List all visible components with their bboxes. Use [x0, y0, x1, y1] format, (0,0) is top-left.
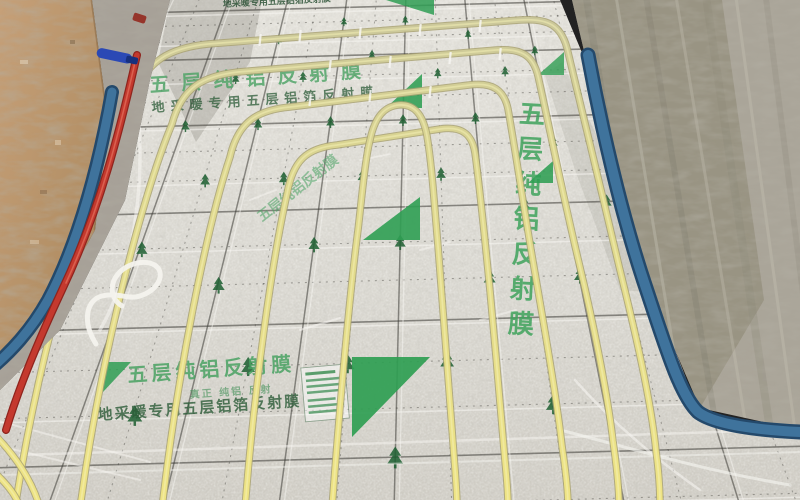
installation-scene: 地采暖专用五层铝箔反射膜 五层纯铝反射膜 地采暖专用五层铝箔反射膜 五层纯铝反射…	[0, 0, 800, 500]
underfloor-heating-photo: 地采暖专用五层铝箔反射膜 五层纯铝反射膜 地采暖专用五层铝箔反射膜 五层纯铝反射…	[0, 0, 800, 500]
